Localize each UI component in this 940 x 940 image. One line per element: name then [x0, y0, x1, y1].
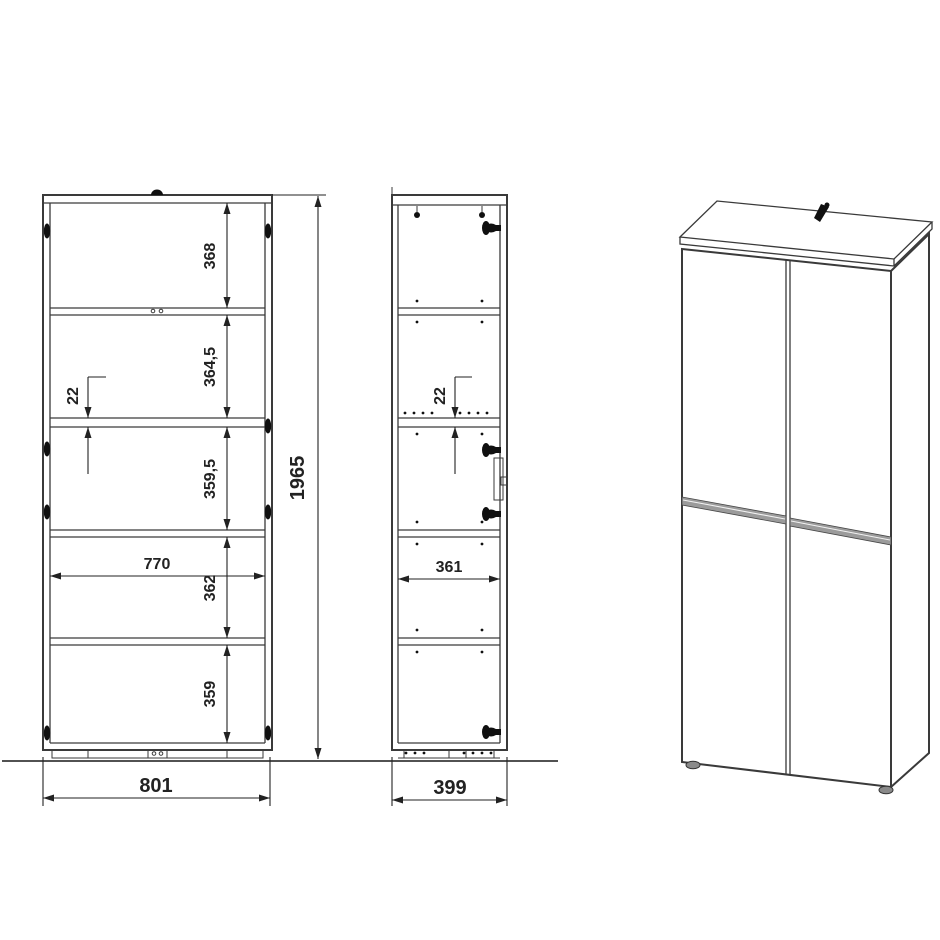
hinge-mark: [44, 505, 50, 520]
hinge-mark: [44, 442, 50, 457]
front-hardware: [44, 190, 271, 741]
hinge-mark: [44, 726, 50, 741]
peg-stems: [417, 206, 482, 212]
top-face: [680, 201, 932, 259]
handle-strip-left: [682, 497, 786, 524]
side-hardware: [404, 206, 507, 754]
front-view: 368 364,5 359,5 362 359 22 770 801 1965: [43, 190, 326, 807]
front-shelf-4: [50, 638, 265, 645]
side-structure: [392, 187, 507, 758]
front-compartment-dim-2: 359,5: [202, 459, 219, 499]
side-plinth: [398, 750, 500, 758]
shelf-pin-dots: [404, 300, 493, 755]
perspective-view: [680, 201, 932, 794]
front-shelf-thickness-dim: 22: [65, 387, 82, 405]
side-dimensions: 22 361 399: [392, 377, 507, 806]
hinge-mark: [265, 419, 271, 434]
front-dimensions: 368 364,5 359,5 362 359 22 770 801 1965: [43, 195, 326, 806]
drawing-canvas: 368 364,5 359,5 362 359 22 770 801 1965: [0, 0, 940, 940]
side-shelf-2: [398, 418, 500, 427]
hinge-mark: [265, 505, 271, 520]
plinth-hole: [159, 752, 163, 756]
hinge-bottom: [482, 725, 501, 739]
front-compartment-dim-4: 359: [202, 681, 219, 708]
front-plinth: [52, 750, 263, 758]
front-compartment-dim-0: 368: [202, 243, 219, 270]
technical-drawing-svg: 368 364,5 359,5 362 359 22 770 801 1965: [0, 0, 940, 940]
handle-strip-left-highlight: [683, 500, 785, 519]
side-shelf-1: [398, 308, 500, 315]
front-height-dim: 1965: [287, 456, 309, 501]
front-structure: [43, 195, 272, 758]
hinge-mark: [265, 726, 271, 741]
hinge-top: [482, 221, 501, 235]
front-outline: [43, 195, 272, 750]
body-side-face: [891, 234, 929, 787]
wall-bracket-cap: [825, 203, 830, 208]
side-shelf-4: [398, 638, 500, 645]
door-gap-vertical: [786, 260, 790, 775]
hanging-peg: [479, 212, 485, 218]
hinge-mark: [44, 224, 50, 239]
foot-right: [879, 786, 893, 794]
front-compartment-dim-3: 362: [202, 575, 219, 602]
shelf-pin-hole: [159, 309, 163, 313]
side-width-dim: 399: [433, 777, 466, 799]
side-shelf-3: [398, 530, 500, 537]
foot-left: [686, 761, 700, 769]
side-inner-depth-dim: 361: [436, 559, 463, 576]
front-shelf-1: [50, 308, 265, 315]
side-outline: [392, 195, 507, 750]
hinge-mark: [265, 224, 271, 239]
front-shelf-2: [50, 418, 265, 427]
plinth-hole: [152, 752, 156, 756]
handle-strip-right-highlight: [791, 521, 890, 540]
front-width-dim: 801: [139, 775, 172, 797]
hinge-mid-lower: [482, 507, 501, 521]
front-compartment-dim-1: 364,5: [202, 347, 219, 387]
front-shelf-3: [50, 530, 265, 537]
hanging-peg: [414, 212, 420, 218]
handle-strip-right: [790, 518, 891, 545]
top-slab-edge: [680, 222, 932, 266]
side-view: 22 361 399: [392, 187, 507, 806]
top-cam-fitting: [151, 190, 163, 195]
side-shelf-thickness-dim: 22: [432, 387, 449, 405]
hinge-mid-upper: [482, 443, 501, 457]
door-handle: [494, 458, 503, 500]
shelf-pin-hole: [151, 309, 155, 313]
front-inner-width-dim: 770: [144, 556, 171, 573]
